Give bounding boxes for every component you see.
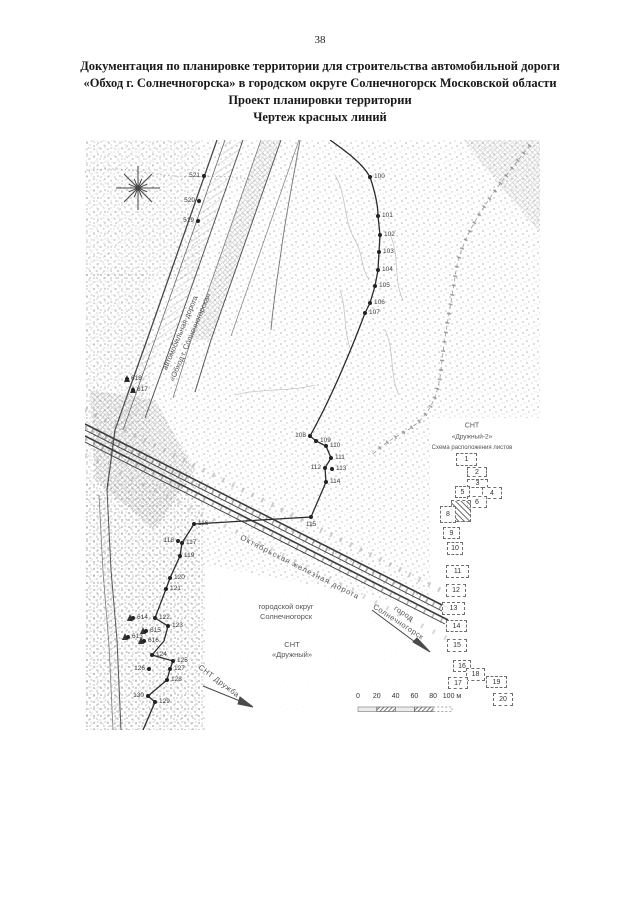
map-point-label: 121	[170, 585, 181, 592]
map-point-label: 108	[295, 432, 306, 439]
map-point-label: 120	[174, 574, 185, 581]
snt-druzhba-label: СНТ Дружба	[197, 663, 241, 700]
map-drawing: автомобильная дорога «Обход г. Солнечног…	[85, 140, 540, 730]
map-point-label: 113	[336, 465, 346, 472]
scale-tick-label: 20	[373, 693, 381, 700]
legend-sheet: 8	[440, 506, 456, 523]
map-point-dot	[144, 629, 148, 633]
legend-sheet: 9	[443, 527, 460, 539]
legend-sheet: 1	[456, 453, 477, 466]
map-point-label: 618	[131, 375, 142, 382]
map-point-dot	[368, 175, 372, 179]
map-point-dot	[324, 444, 328, 448]
map-point-label: 128	[171, 676, 182, 683]
map-point-label: 615	[150, 627, 161, 634]
scale-tick-label: 0	[356, 693, 360, 700]
title-line-3: Проект планировки территории	[30, 92, 610, 109]
railway-label: Октябрьская железная дорога	[239, 533, 361, 601]
title-line-2: «Обход г. Солнечногорска» в городском ок…	[30, 75, 610, 92]
map-point-label: 130	[133, 692, 144, 699]
map-point-label: 102	[384, 231, 395, 238]
map-point-dot	[126, 635, 130, 639]
legend-sheet: 12	[446, 584, 466, 597]
map-point-dot	[314, 439, 318, 443]
map-point-label: 126	[134, 665, 145, 672]
map-point-dot	[323, 466, 327, 470]
map-point-dot	[376, 214, 380, 218]
map-point-label: 124	[156, 651, 167, 658]
map-point-label: 117	[186, 539, 196, 546]
map-overlay: автомобильная дорога «Обход г. Солнечног…	[85, 140, 540, 730]
map-point-dot	[373, 284, 377, 288]
map-point-dot	[363, 311, 367, 315]
map-point-dot	[192, 522, 196, 526]
map-point-dot	[180, 541, 184, 545]
map-point-label: 617	[137, 386, 148, 393]
legend-sheet: 17	[448, 677, 468, 689]
map-point-label: 127	[174, 665, 185, 672]
map-point-dot	[164, 587, 168, 591]
map-point-dot	[176, 539, 180, 543]
map-point-dot	[309, 515, 313, 519]
map-point-dot	[150, 653, 154, 657]
map-point-dot	[377, 250, 381, 254]
map-point-dot	[324, 480, 328, 484]
legend-sheet: 20	[493, 693, 513, 706]
map-point-label: 107	[369, 309, 380, 316]
map-point-dot	[142, 639, 146, 643]
map-point-dot	[165, 678, 169, 682]
map-point-dot	[125, 377, 129, 381]
map-point-label: 100	[374, 173, 385, 180]
map-point-dot	[171, 659, 175, 663]
map-point-label: 106	[374, 299, 385, 306]
map-point-label: 519	[183, 217, 194, 224]
legend-sheet: 14	[446, 620, 467, 632]
map-point-dot	[330, 467, 334, 471]
title-line-1: Документация по планировке территории дл…	[30, 58, 610, 75]
map-point-dot	[131, 616, 135, 620]
map-point-label: 125	[177, 657, 188, 664]
scale-tick-label: 40	[392, 693, 400, 700]
map-point-dot	[131, 388, 135, 392]
legend-sheet: 19	[486, 676, 507, 688]
map-point-dot	[197, 199, 201, 203]
map-point-label: 123	[172, 622, 183, 629]
map-point-label: 129	[159, 698, 170, 705]
map-point-dot	[153, 700, 157, 704]
scale-tick-label: 60	[410, 693, 418, 700]
legend-sheet: 18	[466, 668, 485, 681]
legend-subtitle: Схема расположения листов	[432, 445, 513, 451]
map-point-label: 110	[330, 442, 340, 449]
map-point-label: 101	[382, 212, 393, 219]
legend-sheet: 2	[467, 467, 487, 477]
map-point-dot	[178, 554, 182, 558]
legend-sheet: 15	[447, 639, 467, 652]
map-point-label: 116	[198, 520, 208, 527]
snt-druzhny-label: СНТ «Дружный»	[272, 640, 312, 660]
map-point-label: 111	[335, 454, 345, 461]
map-point-label: 614	[137, 614, 148, 621]
map-point-dot	[378, 233, 382, 237]
map-point-label: 103	[383, 248, 394, 255]
map-point-dot	[168, 576, 172, 580]
map-point-label: 616	[148, 637, 159, 644]
legend-sheet: 13	[442, 602, 465, 615]
scale-tick-label: 80	[429, 693, 437, 700]
highway-label: автомобильная дорога «Обход г. Солнечног…	[156, 287, 213, 383]
map-point-label: 104	[382, 266, 393, 273]
legend-title-2: «Дружный-2»	[452, 434, 493, 441]
map-point-dot	[153, 616, 157, 620]
map-point-dot	[168, 667, 172, 671]
map-point-label: 105	[379, 282, 390, 289]
map-point-dot	[196, 219, 200, 223]
map-point-dot	[376, 268, 380, 272]
map-point-dot	[147, 667, 151, 671]
map-point-label: 114	[330, 478, 340, 485]
map-point-label: 115	[306, 521, 316, 528]
map-point-label: 119	[184, 552, 194, 559]
document-title: Документация по планировке территории дл…	[30, 58, 610, 126]
city-label: город Солнечногорск	[371, 594, 431, 643]
map-point-dot	[166, 624, 170, 628]
map-point-dot	[146, 694, 150, 698]
scale-tick-label: 100 м	[443, 693, 461, 700]
page-number: 38	[0, 34, 640, 46]
title-line-4: Чертеж красных линий	[30, 109, 610, 126]
map-point-label: 520	[184, 197, 195, 204]
map-point-label: 521	[189, 172, 200, 179]
legend-sheet: 10	[447, 542, 463, 555]
document-page: 38 Документация по планировке территории…	[0, 0, 640, 905]
map-point-dot	[368, 301, 372, 305]
legend-sheet: 11	[446, 565, 469, 578]
map-point-label: 122	[159, 614, 170, 621]
okrug-label: городской округ Солнечногорск	[259, 602, 314, 622]
map-point-label: 112	[311, 464, 321, 471]
map-point-label: 118	[164, 537, 174, 544]
legend-title: СНТ	[465, 423, 479, 430]
map-point-dot	[202, 174, 206, 178]
map-point-dot	[308, 434, 312, 438]
map-point-dot	[329, 456, 333, 460]
